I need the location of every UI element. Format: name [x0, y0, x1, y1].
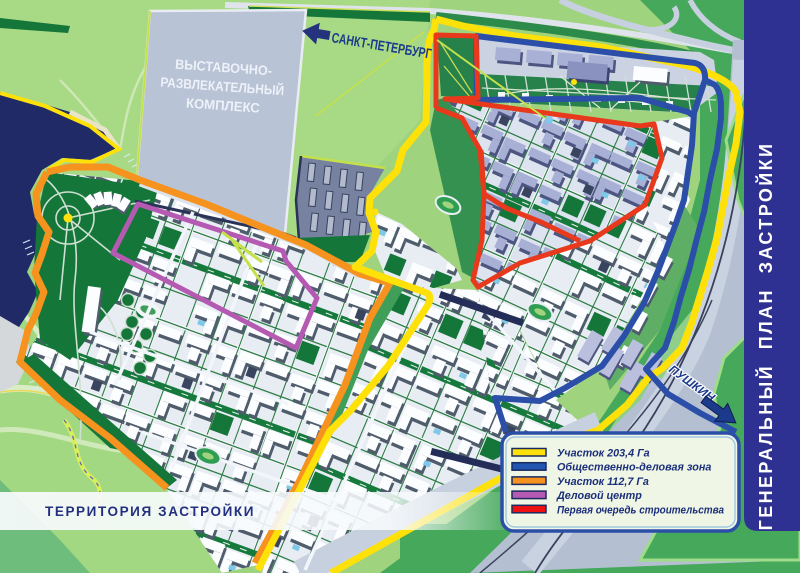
svg-text:Деловой центр: Деловой центр: [556, 490, 642, 502]
svg-text:Участок 203,4 Га: Участок 203,4 Га: [557, 448, 650, 460]
svg-text:Общественно-деловая зона: Общественно-деловая зона: [557, 462, 711, 474]
svg-text:ТЕРРИТОРИЯ ЗАСТРОЙКИ: ТЕРРИТОРИЯ ЗАСТРОЙКИ: [45, 504, 255, 519]
svg-text:Первая очередь строительства: Первая очередь строительства: [557, 504, 724, 516]
svg-text:Участок 112,7 Га: Участок 112,7 Га: [557, 476, 649, 488]
svg-text:ГЕНЕРАЛЬНЫЙ ПЛАН ЗАСТРОЙКИ: ГЕНЕРАЛЬНЫЙ ПЛАН ЗАСТРОЙКИ: [755, 142, 776, 531]
